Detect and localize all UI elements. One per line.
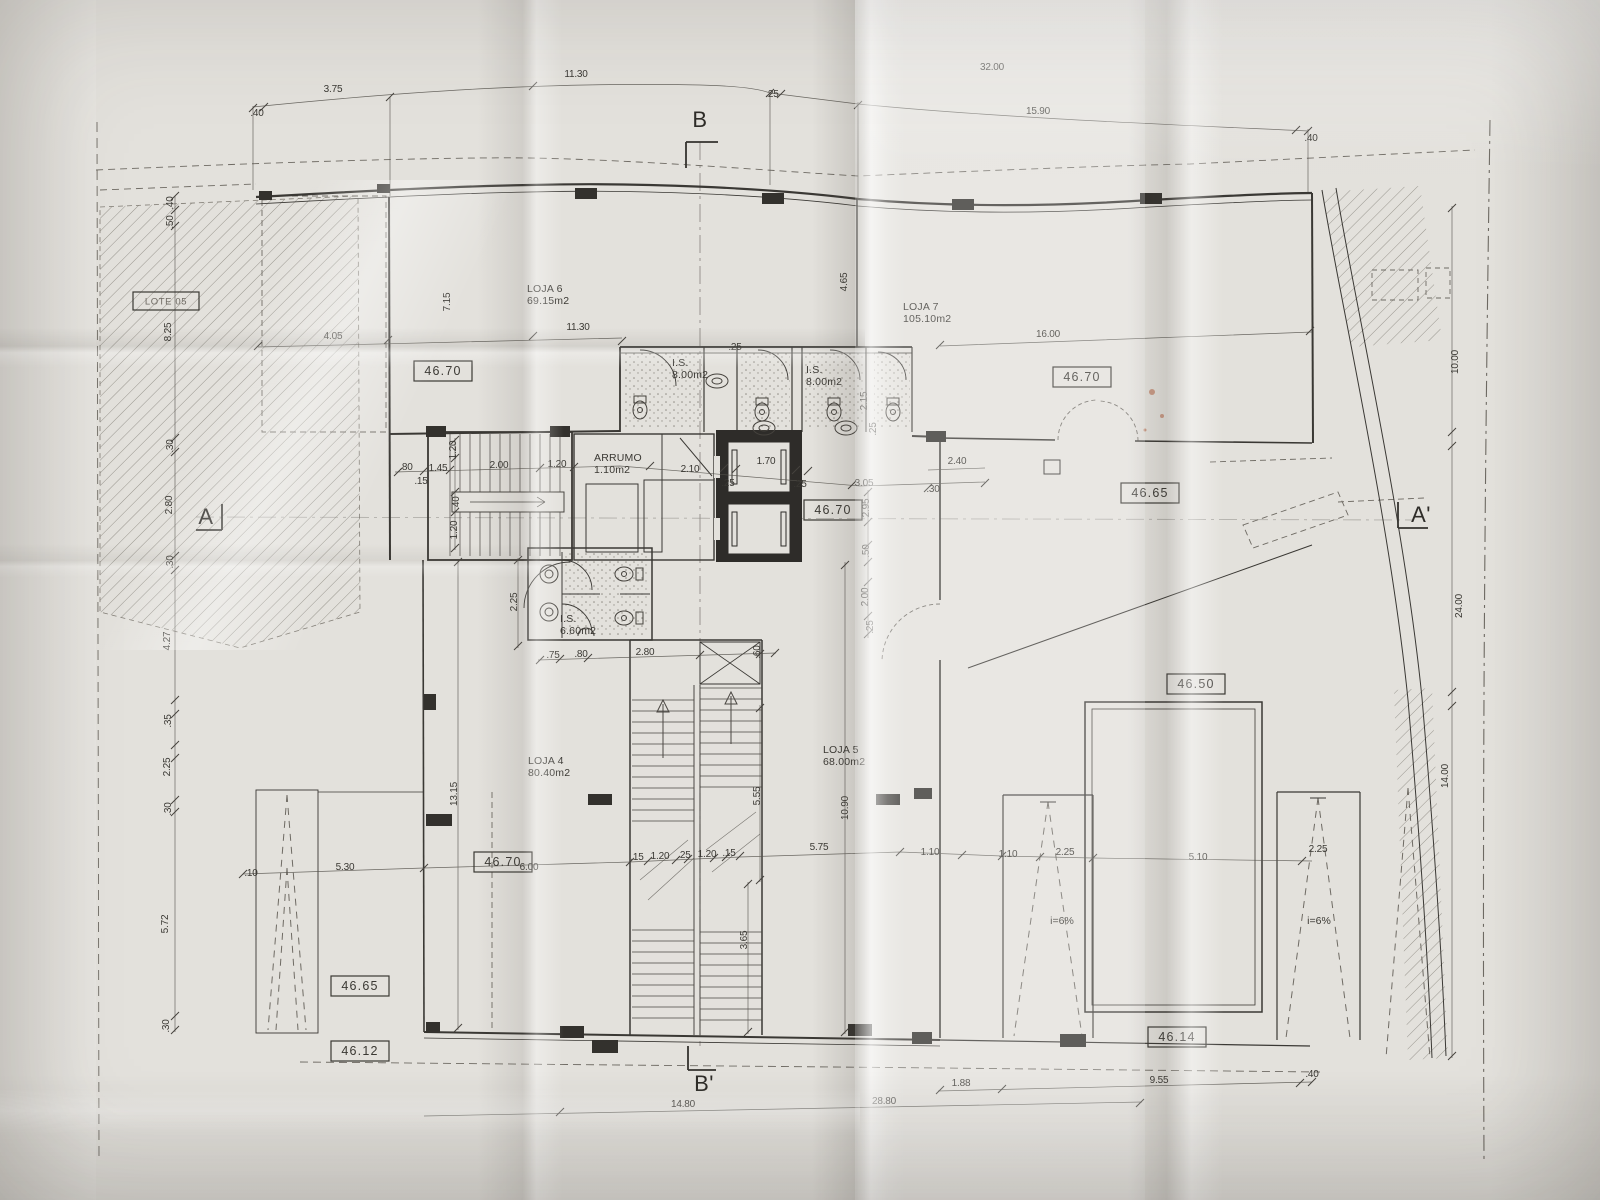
dimension-label: 2.25 <box>1309 844 1328 855</box>
dimension-label: .30 <box>161 1019 172 1033</box>
dimension-label: 1.88 <box>952 1078 971 1089</box>
dimension-label: .60 <box>752 645 763 659</box>
room-area-label: 80.40m2 <box>528 767 570 779</box>
dimension-label: 24.00 <box>1454 593 1465 618</box>
dimension-label: .15 <box>630 852 644 863</box>
dimension-label: .15 <box>414 476 428 487</box>
dimension-label: .25 <box>865 620 876 634</box>
dimension-label: 10.00 <box>1450 349 1461 374</box>
floor-plan-photo: .403.7511.3032.00.2515.90.404.0511.3016.… <box>0 0 1600 1200</box>
dimension-label: 2.25 <box>509 592 520 611</box>
dimension-label: .25 <box>765 89 779 100</box>
dimension-label: 9.55 <box>1150 1075 1169 1086</box>
dimension-label: 2.25 <box>162 757 173 776</box>
section-marker: B <box>692 107 707 132</box>
dimension-label: .40 <box>1305 1069 1319 1080</box>
room-label: I.S. <box>806 364 823 376</box>
dimension-label: 2.00 <box>490 460 509 471</box>
dimension-label: 1.10 <box>999 849 1018 860</box>
dimension-label: 1.20 <box>448 440 459 459</box>
dimension-label: 28.80 <box>872 1096 897 1107</box>
elevation-marker: 46.70 <box>814 503 851 517</box>
dimension-label: 2.25 <box>1056 847 1075 858</box>
dimension-label: 1.20 <box>548 459 567 470</box>
slope-label: i=6% <box>1307 915 1331 927</box>
slope-triangles <box>268 788 1430 1058</box>
dimension-label: 5.10 <box>1189 852 1208 863</box>
dimension-label: .80 <box>399 462 413 473</box>
dimension-label: 7.15 <box>442 292 453 311</box>
dimension-label: 3.65 <box>739 930 750 949</box>
dimension-label: .75 <box>546 650 560 661</box>
section-marker: A' <box>1411 502 1431 527</box>
dimension-label: .30 <box>926 484 940 495</box>
room-label: LOJA 5 <box>823 744 859 756</box>
sink-icon <box>540 565 558 583</box>
floor-plan-svg: .403.7511.3032.00.2515.90.404.0511.3016.… <box>0 0 1600 1200</box>
dimension-label: 14.80 <box>671 1099 696 1110</box>
dimension-label: .30 <box>165 439 176 453</box>
dimension-label: .40 <box>165 196 176 210</box>
dimension-label: 6.00 <box>520 862 539 873</box>
dimension-label: 4.27 <box>162 631 173 650</box>
dimension-label: .25 <box>677 850 691 861</box>
section-lines <box>196 142 1412 1046</box>
dimension-label: 11.30 <box>564 69 588 80</box>
elevation-marker: 46.65 <box>1131 486 1168 500</box>
dimension-label: 2.40 <box>948 456 967 467</box>
dimension-label: .15 <box>722 848 736 859</box>
dimension-label: 8.25 <box>163 322 174 341</box>
room-area-label: 105.10m2 <box>903 313 951 325</box>
elevation-marker: 46.50 <box>1177 677 1214 691</box>
dimension-label: 2.80 <box>636 647 655 658</box>
dimension-label: .25 <box>793 479 807 490</box>
dimension-label: 2.15 <box>859 391 870 410</box>
dimension-label: .40 <box>1304 133 1318 144</box>
dimension-label: .25 <box>721 478 735 489</box>
room-label: ARRUMO <box>594 452 642 464</box>
room-area-label: 1.10m2 <box>594 464 630 476</box>
dimension-label: .50 <box>861 544 872 558</box>
dimension-label: .35 <box>163 714 174 728</box>
dimension-lines <box>175 84 1452 1116</box>
elevation-marker: 46.70 <box>424 364 461 378</box>
dimension-label: .50 <box>165 215 176 229</box>
elevation-marker: 46.70 <box>484 855 521 869</box>
dimension-label: 2.10 <box>681 464 700 475</box>
dimension-label: 1.45 <box>429 463 448 474</box>
walls <box>256 184 1446 1058</box>
elevator-core <box>714 430 802 562</box>
room-area-label: 8.00m2 <box>672 369 708 381</box>
room-label: LOJA 4 <box>528 755 564 767</box>
dimension-label: 1.20 <box>651 851 670 862</box>
dimension-label: 1.20 <box>698 849 717 860</box>
room-area-label: 6.60m2 <box>560 625 596 637</box>
dimension-label: 3.75 <box>324 84 343 95</box>
dimension-label: 4.65 <box>839 272 850 291</box>
structural-columns <box>259 184 1162 1053</box>
elevation-marker: 46.12 <box>341 1044 378 1058</box>
dimension-label: .40 <box>451 496 462 510</box>
dimension-label: 11.30 <box>566 322 590 333</box>
dimension-label: .80 <box>574 649 588 660</box>
dimension-label: 5.72 <box>160 914 171 933</box>
dimension-label: 16.00 <box>1036 329 1061 340</box>
dimension-label: .25 <box>868 422 879 436</box>
dimension-label: .30 <box>163 802 174 816</box>
room-area-label: 8.00m2 <box>806 376 842 388</box>
dimension-label: .10 <box>244 868 258 879</box>
room-label: I.S. <box>672 357 689 369</box>
room-label: I.S. <box>560 613 577 625</box>
sink-icon <box>706 374 728 388</box>
dimension-ticks <box>171 82 1456 1116</box>
dimension-label: 10.90 <box>840 795 851 820</box>
dimension-label: 15.90 <box>1026 106 1051 117</box>
elevation-marker: 46.14 <box>1158 1030 1195 1044</box>
dimension-label: 5.30 <box>336 862 355 873</box>
elevation-marker: 46.70 <box>1063 370 1100 384</box>
room-area-label: 68.00m2 <box>823 756 865 768</box>
dimension-label: 14.00 <box>1440 763 1451 788</box>
dimension-label: .30 <box>165 555 176 569</box>
parcel-label: LOTE 05 <box>145 297 187 308</box>
slope-label: i=6% <box>1050 915 1074 927</box>
room-label: LOJA 7 <box>903 301 939 313</box>
dimension-label: 2.95 <box>861 498 872 517</box>
dimension-label: 2.80 <box>164 495 175 514</box>
sink-icon <box>540 603 558 621</box>
dimension-label: 1.10 <box>921 847 940 858</box>
dimension-label: .40 <box>250 108 264 119</box>
dimension-label: 1.20 <box>449 520 460 539</box>
dimension-label: 2.00 <box>860 587 871 606</box>
dimension-label: 4.05 <box>324 331 343 342</box>
section-brackets <box>196 142 1428 1070</box>
hatch-areas <box>100 186 1448 1060</box>
room-area-label: 69.15m2 <box>527 295 569 307</box>
section-marker: B' <box>694 1071 714 1096</box>
dimension-label: 5.55 <box>752 786 763 805</box>
dimension-label: 13.15 <box>449 781 460 806</box>
room-label: LOJA 6 <box>527 283 563 295</box>
dimension-label: 3.05 <box>855 478 874 489</box>
elevation-marker: 46.65 <box>341 979 378 993</box>
dimension-label: 32.00 <box>980 62 1005 73</box>
paper-stain <box>1144 389 1165 432</box>
dimension-label: 5.75 <box>810 842 829 853</box>
dimension-label: 1.70 <box>757 456 776 467</box>
dimension-label: .25 <box>728 342 742 353</box>
section-marker: A <box>198 504 213 529</box>
